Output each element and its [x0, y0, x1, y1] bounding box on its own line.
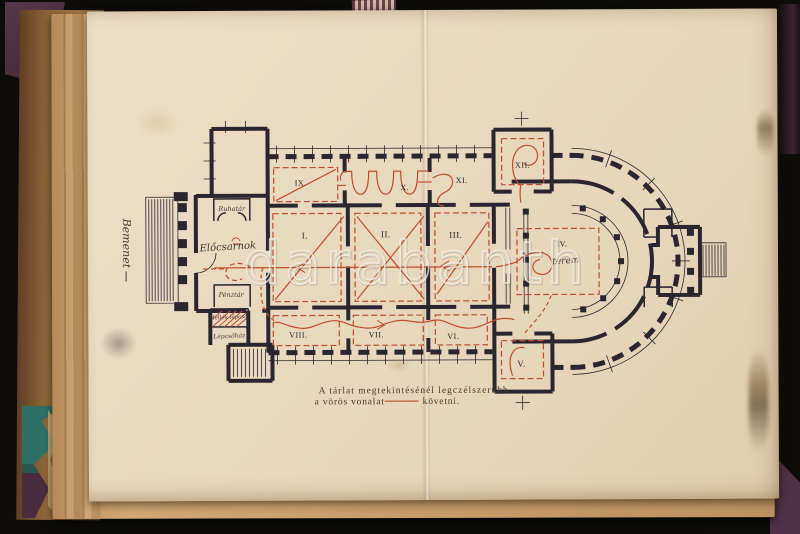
stain-edge-smear-bottom	[748, 349, 768, 453]
handwritten-hall: Előcsarnok	[198, 240, 256, 254]
handwritten-terem: terem	[552, 255, 580, 267]
handwritten-cloakroom: Ruhatár	[217, 205, 246, 213]
room-label-vi: VI.	[447, 332, 459, 341]
svg-text:Bemenet: Bemenet	[120, 218, 133, 269]
caption-line1: A tárlat megtekintésénél legczélszerűbb	[319, 386, 509, 397]
stain-edge-smear-top	[757, 109, 773, 157]
room-label-xii: XII.	[515, 161, 530, 170]
caption-line2-start: a vörös vonalat	[315, 397, 385, 407]
room-label-i: I.	[302, 231, 308, 241]
handwritten-side-stair: Mellék lépcső	[208, 313, 248, 322]
handwritten-stairwell: Lépcsőház	[212, 332, 246, 340]
book-photo: I. II. III. IV. V. VI. VII. VIII. IX. X.…	[0, 0, 800, 534]
room-label-xi: XI.	[456, 176, 468, 185]
stain-foxing-2	[386, 358, 412, 372]
floor-plan: I. II. III. IV. V. VI. VII. VIII. IX. X.…	[0, 0, 800, 534]
handwritten-ticket-office: Pénztár	[218, 291, 245, 299]
plate-page: I. II. III. IV. V. VI. VII. VIII. IX. X.…	[87, 8, 779, 501]
caption-line2-end: követni.	[423, 397, 460, 407]
room-label-iii: III.	[449, 230, 462, 240]
room-label-v: V.	[517, 359, 526, 369]
room-label-ix: IX.	[295, 179, 307, 188]
plan-window-walls	[268, 155, 679, 369]
handwritten-entrance: Bemenet	[120, 218, 133, 282]
room-label-viii: VIII.	[289, 331, 307, 340]
stain-foxing-1	[135, 107, 179, 137]
room-label-vii: VII.	[369, 330, 384, 339]
room-label-x: X.	[400, 183, 409, 192]
stain-grey	[100, 327, 136, 359]
caption: A tárlat megtekintésénél legczélszerűbb …	[315, 386, 509, 408]
room-label-ii: II.	[381, 229, 391, 239]
room-label-iv: IV.	[556, 239, 567, 248]
